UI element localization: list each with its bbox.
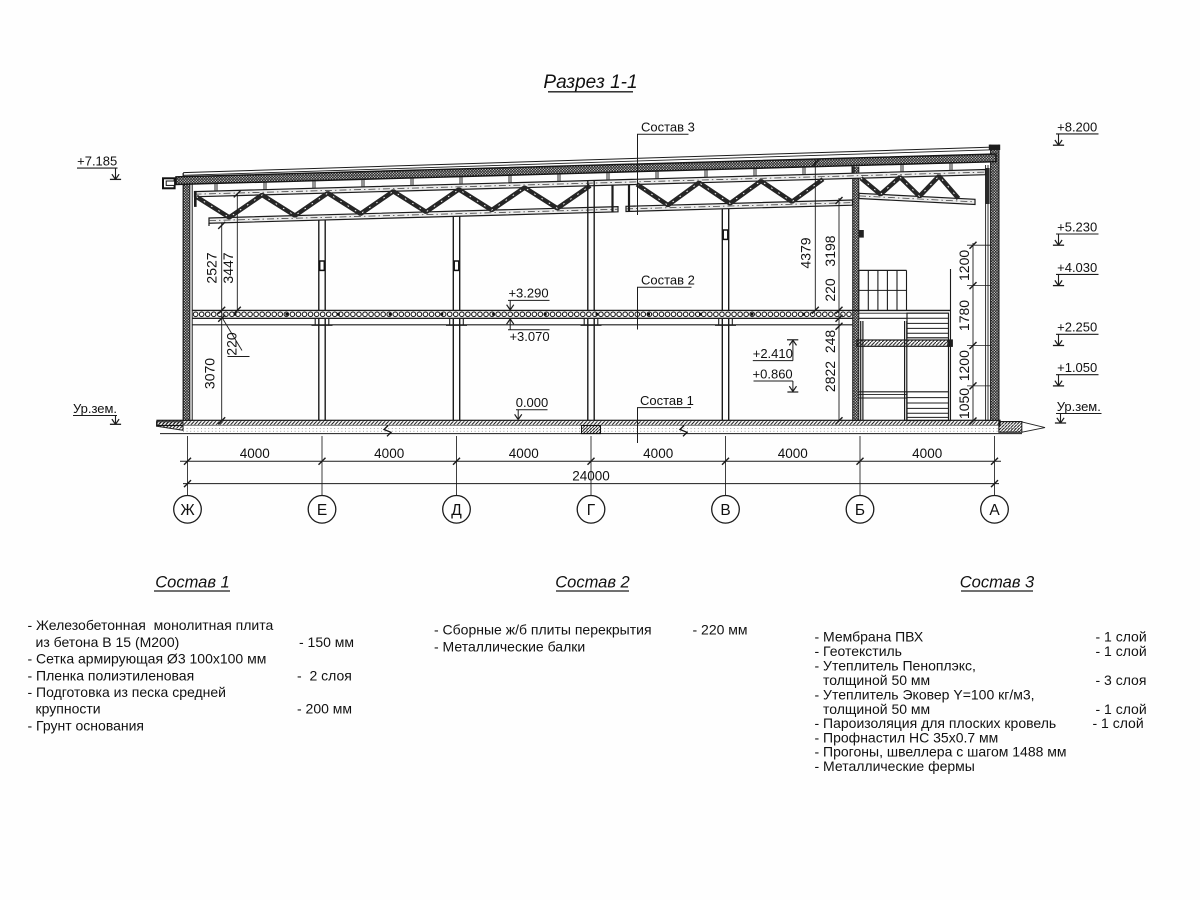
svg-text:Состав 2: Состав 2 [555,574,629,592]
svg-text:А: А [989,502,1000,519]
svg-text:4000: 4000 [643,446,673,461]
svg-text:- 200 мм: - 200 мм [297,701,352,717]
svg-text:+2.410: +2.410 [753,346,793,361]
svg-text:Г: Г [587,502,596,519]
svg-text:+5.230: +5.230 [1057,219,1097,234]
svg-text:Ур.зем.: Ур.зем. [73,401,117,416]
svg-text:4379: 4379 [797,237,813,268]
svg-text:3070: 3070 [202,358,218,389]
svg-text:Разрез 1-1: Разрез 1-1 [543,72,637,93]
svg-text:4000: 4000 [778,446,808,461]
svg-text:4000: 4000 [912,446,942,461]
svg-text:220: 220 [822,278,838,302]
svg-text:Ур.зем.: Ур.зем. [1057,399,1101,414]
svg-text:- Сетка армирующая Ø3 100х100: - Сетка армирующая Ø3 100х100 мм [28,651,267,667]
svg-text:- Железобетонная монолитная п: - Железобетонная монолитная плита [28,617,274,633]
svg-text:4000: 4000 [374,446,404,461]
svg-text:+7.185: +7.185 [77,154,117,169]
svg-text:+0.860: +0.860 [753,366,793,381]
svg-text:- 1 слой: - 1 слой [1096,643,1147,659]
svg-text:1200: 1200 [956,250,972,281]
svg-text:- Грунт основания: - Грунт основания [28,718,145,734]
svg-text:- 2 слоя: - 2 слоя [297,668,352,684]
svg-text:24000: 24000 [572,468,610,483]
svg-text:1780: 1780 [956,300,972,331]
svg-text:Б: Б [855,502,865,519]
svg-text:Ж: Ж [180,502,195,519]
svg-text:- Пленка полиэтиленовая: - Пленка полиэтиленовая [28,668,195,684]
svg-text:+8.200: +8.200 [1057,119,1097,134]
svg-text:Состав 1: Состав 1 [155,574,229,592]
svg-text:из бетона В 15 (М200): из бетона В 15 (М200) [36,634,180,650]
svg-text:Е: Е [317,502,327,519]
svg-text:2527: 2527 [204,252,220,283]
svg-text:1050: 1050 [956,388,972,419]
svg-text:+3.070: +3.070 [509,329,549,344]
svg-text:Состав 1: Состав 1 [640,393,694,408]
svg-text:+3.290: +3.290 [508,286,548,301]
svg-text:- Подготовка из песка средней: - Подготовка из песка средней [28,684,227,700]
svg-text:- 1 слой: - 1 слой [1093,715,1144,731]
svg-text:2822: 2822 [822,361,838,392]
svg-text:- Сборные ж/б плиты перекрытия: - Сборные ж/б плиты перекрытия [434,622,652,638]
svg-text:+1.050: +1.050 [1057,360,1097,375]
svg-text:- Металлические фермы: - Металлические фермы [815,758,975,774]
svg-text:1200: 1200 [956,350,972,381]
svg-text:В: В [720,502,730,519]
svg-text:220: 220 [224,332,240,356]
svg-text:- 3 слоя: - 3 слоя [1096,672,1147,688]
svg-text:Состав 3: Состав 3 [960,574,1035,592]
svg-text:4000: 4000 [509,446,539,461]
svg-text:Состав 3: Состав 3 [641,120,695,135]
svg-text:0.000: 0.000 [516,395,549,410]
svg-text:3447: 3447 [220,252,236,283]
svg-text:- 150 мм: - 150 мм [299,634,354,650]
svg-text:Состав 2: Состав 2 [641,273,695,288]
svg-text:- Металлические балки: - Металлические балки [434,639,585,655]
svg-text:3198: 3198 [822,235,838,266]
svg-text:- 220 мм: - 220 мм [693,622,748,638]
svg-text:Д: Д [451,502,462,519]
svg-text:4000: 4000 [240,446,270,461]
svg-text:248: 248 [822,330,838,354]
svg-text:+2.250: +2.250 [1057,320,1097,335]
svg-text:крупности: крупности [36,701,101,717]
svg-text:+4.030: +4.030 [1057,260,1097,275]
